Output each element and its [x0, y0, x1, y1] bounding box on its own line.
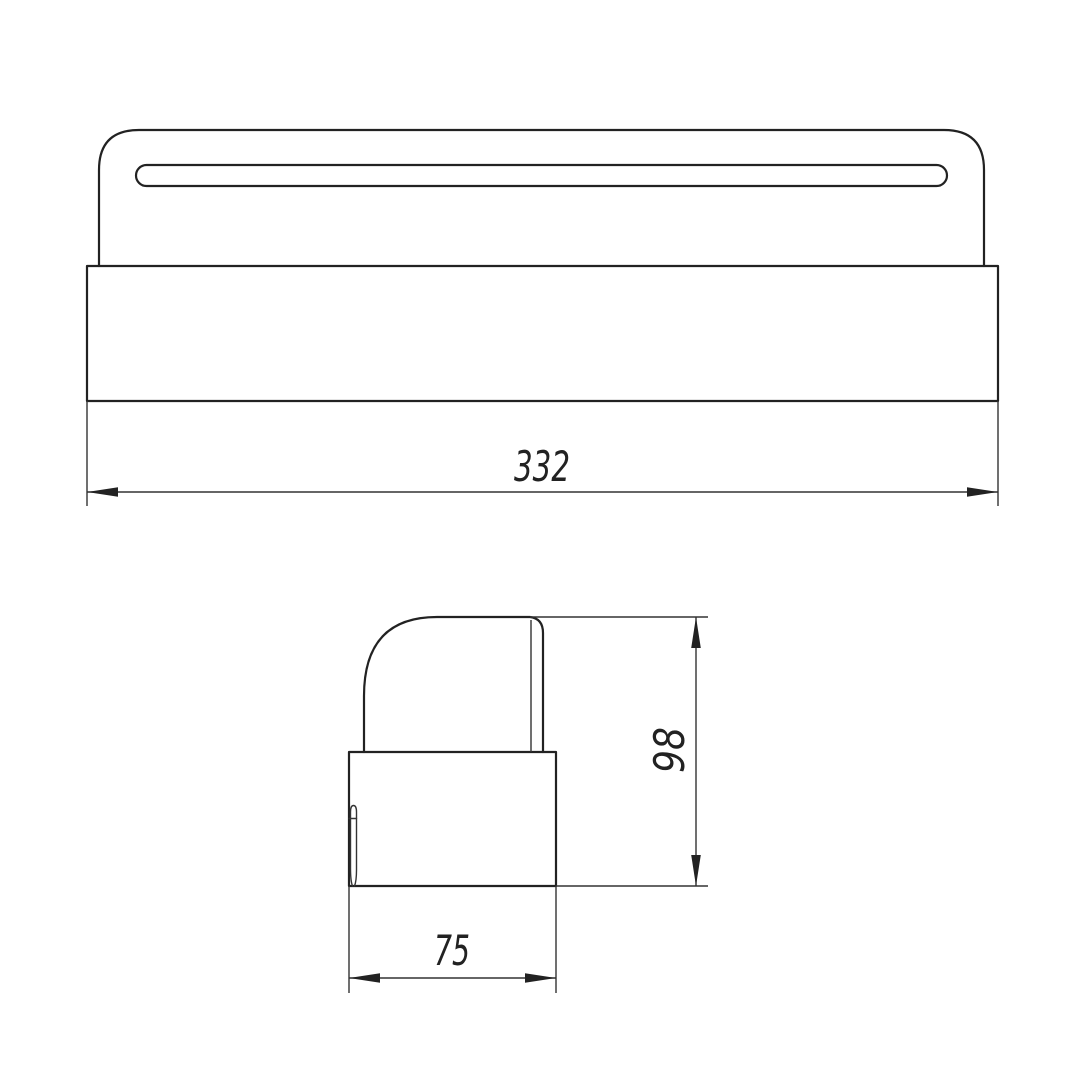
depth-dimension-text: 75: [434, 926, 470, 975]
height-dimension-text: 98: [645, 727, 694, 773]
depth-arrowhead-left-icon: [349, 973, 380, 983]
cap-outline: [99, 130, 984, 266]
height-arrowhead-up-icon: [691, 617, 701, 648]
width-arrowhead-right-icon: [967, 487, 998, 497]
depth-arrowhead-right-icon: [525, 973, 556, 983]
base-outline: [87, 266, 998, 401]
front-view: 332: [87, 130, 998, 506]
technical-drawing-canvas: 332 98 75: [0, 0, 1080, 1080]
base-profile-outline: [349, 752, 556, 886]
cap-profile-outline: [364, 617, 543, 752]
technical-drawing-page: 332 98 75: [0, 0, 1080, 1080]
mounting-slot: [136, 165, 947, 186]
height-arrowhead-down-icon: [691, 855, 701, 886]
side-view: 98 75: [349, 617, 708, 993]
clip-tab-detail: [351, 806, 357, 887]
width-arrowhead-left-icon: [87, 487, 118, 497]
width-dimension-text: 332: [514, 442, 570, 491]
